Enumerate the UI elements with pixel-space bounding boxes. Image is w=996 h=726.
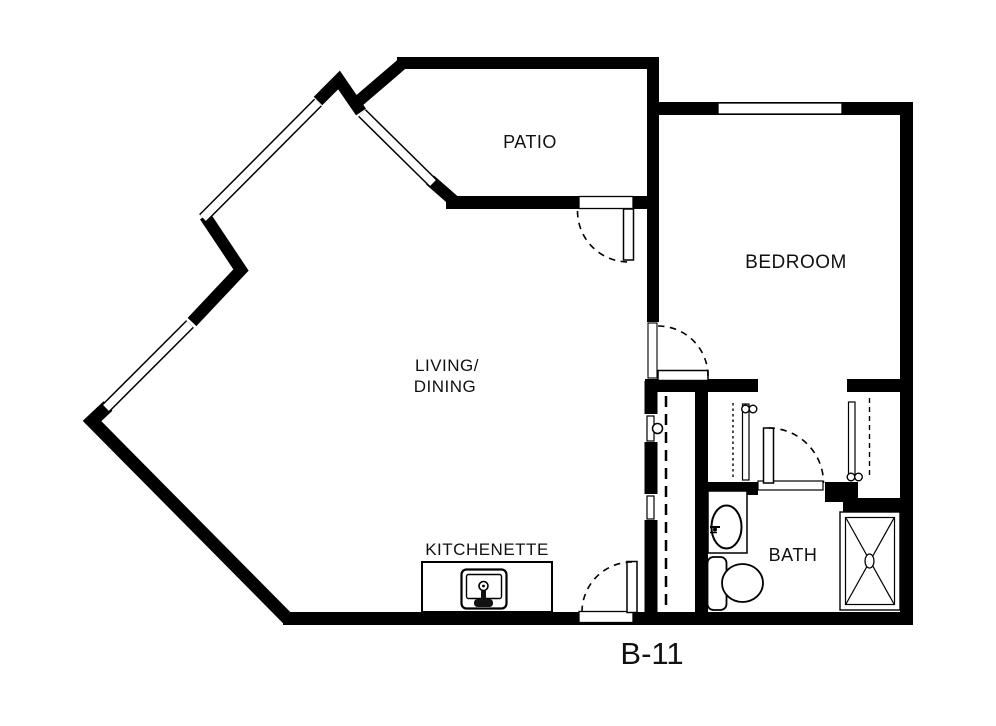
bathroom-vanity-sink <box>708 491 747 553</box>
kitchen-sink <box>462 570 507 609</box>
floor-plan-svg: PATIO BEDROOM LIVING/ DINING KITCHENETTE… <box>0 0 996 726</box>
shower-stall <box>840 512 900 610</box>
room-label-bath: BATH <box>769 545 818 565</box>
room-label-living-line2: DINING <box>414 377 477 396</box>
floor-plan-page: PATIO BEDROOM LIVING/ DINING KITCHENETTE… <box>0 0 996 726</box>
room-label-bedroom: BEDROOM <box>745 252 847 273</box>
room-label-kitchenette: KITCHENETTE <box>425 540 549 559</box>
room-label-patio: PATIO <box>503 132 557 152</box>
unit-label: B-11 <box>620 636 683 671</box>
bedroom-window <box>718 103 842 114</box>
room-label-living-line1: LIVING/ <box>415 356 479 375</box>
